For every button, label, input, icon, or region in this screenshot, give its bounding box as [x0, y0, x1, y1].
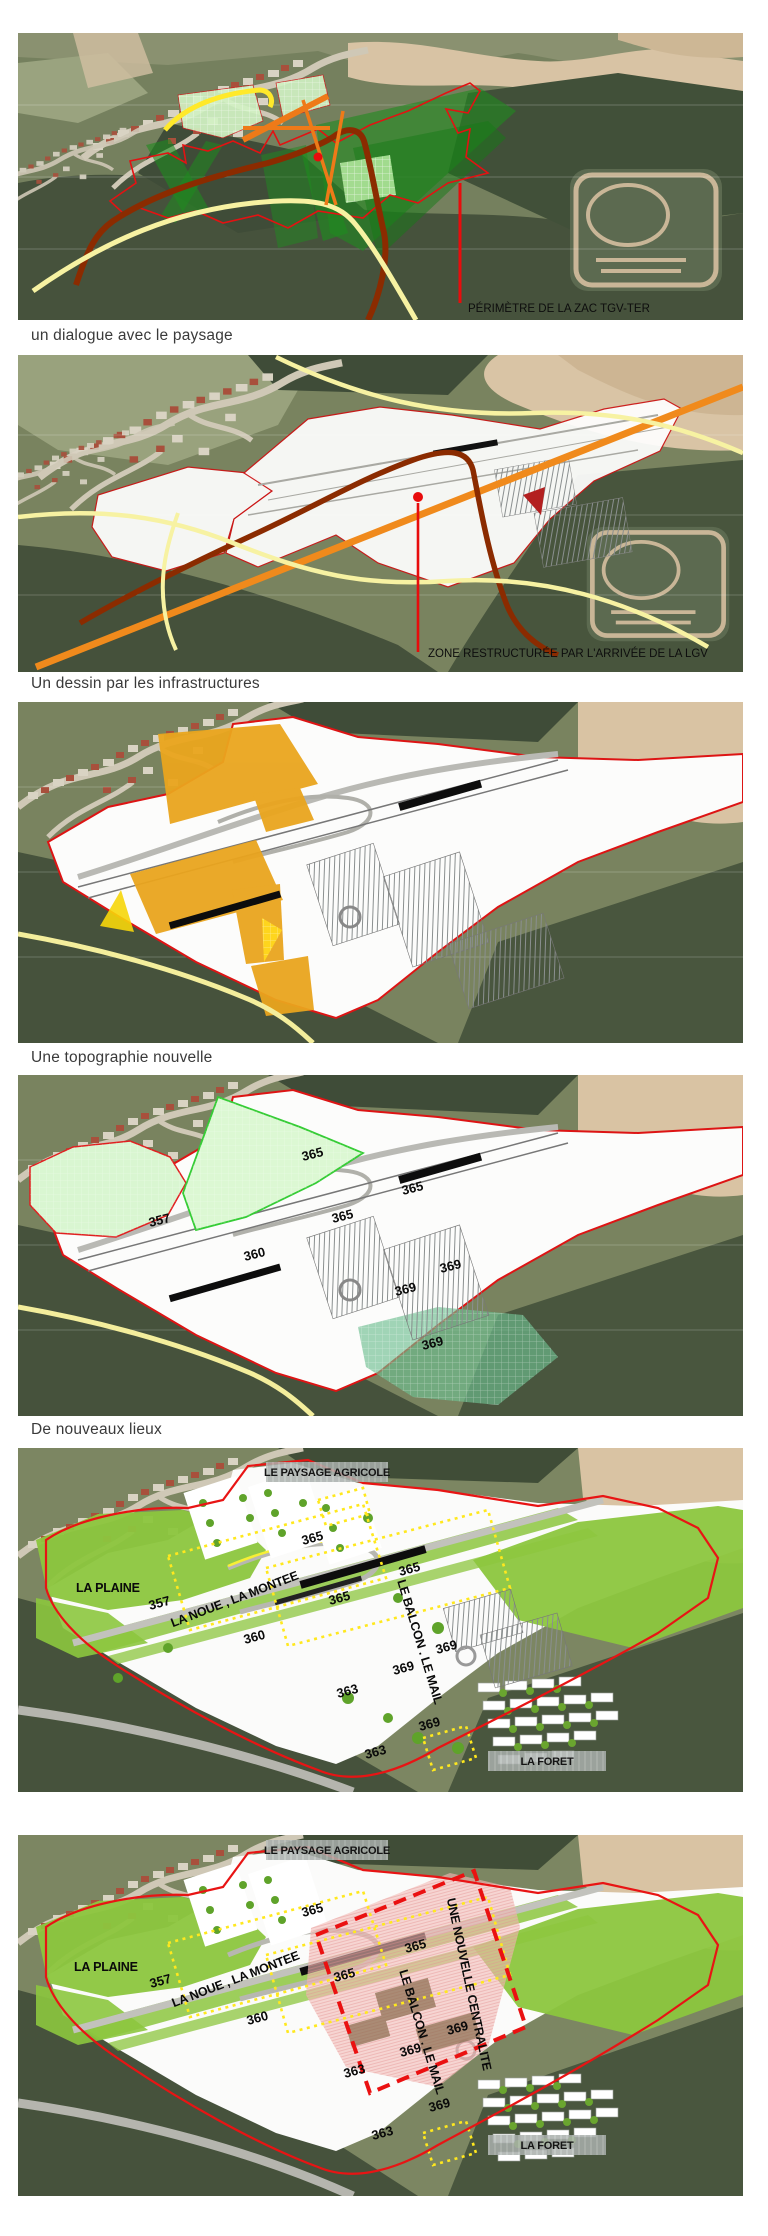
red-marker-dot: [314, 153, 323, 162]
caption-infrastructures: Un dessin par les infrastructures: [31, 675, 260, 693]
map-nouvelle-centralite: LE PAYSAGE AGRICOLE LA FORET LA PLAINE L…: [18, 1835, 743, 2196]
perimetre-zac-label: PÉRIMÈTRE DE LA ZAC TGV-TER: [468, 302, 650, 315]
planning-document-page: PÉRIMÈTRE DE LA ZAC TGV-TER un dialogue …: [0, 0, 768, 2236]
foret-label: LA FORET: [521, 2140, 574, 2152]
caption-dialogue-paysage: un dialogue avec le paysage: [31, 327, 233, 345]
plaine-label: LA PLAINE: [74, 1960, 138, 1974]
quarry-oval-track: [570, 169, 722, 291]
foret-label: LA FORET: [521, 1756, 574, 1768]
paysage-agricole-label: LE PAYSAGE AGRICOLE: [264, 1467, 390, 1479]
paysage-agricole-label: LE PAYSAGE AGRICOLE: [264, 1845, 390, 1857]
map-topographie: [18, 702, 743, 1043]
red-marker-dot: [413, 492, 423, 502]
map-paysage-lieux: LE PAYSAGE AGRICOLE LA FORET LA PLAINE L…: [18, 1448, 743, 1792]
caption-topographie: Une topographie nouvelle: [31, 1049, 212, 1067]
map-infrastructures: ZONE RESTRUCTURÉE PAR L'ARRIVÉE DE LA LG…: [18, 355, 743, 672]
plaine-label: LA PLAINE: [76, 1581, 140, 1595]
map-dialogue-paysage: PÉRIMÈTRE DE LA ZAC TGV-TER: [18, 33, 743, 320]
map-nouveaux-lieux: 365 365 365 357 360 369 369 369: [18, 1075, 743, 1416]
caption-nouveaux-lieux: De nouveaux lieux: [31, 1421, 162, 1439]
zone-restructuree-label: ZONE RESTRUCTURÉE PAR L'ARRIVÉE DE LA LG…: [428, 647, 708, 660]
